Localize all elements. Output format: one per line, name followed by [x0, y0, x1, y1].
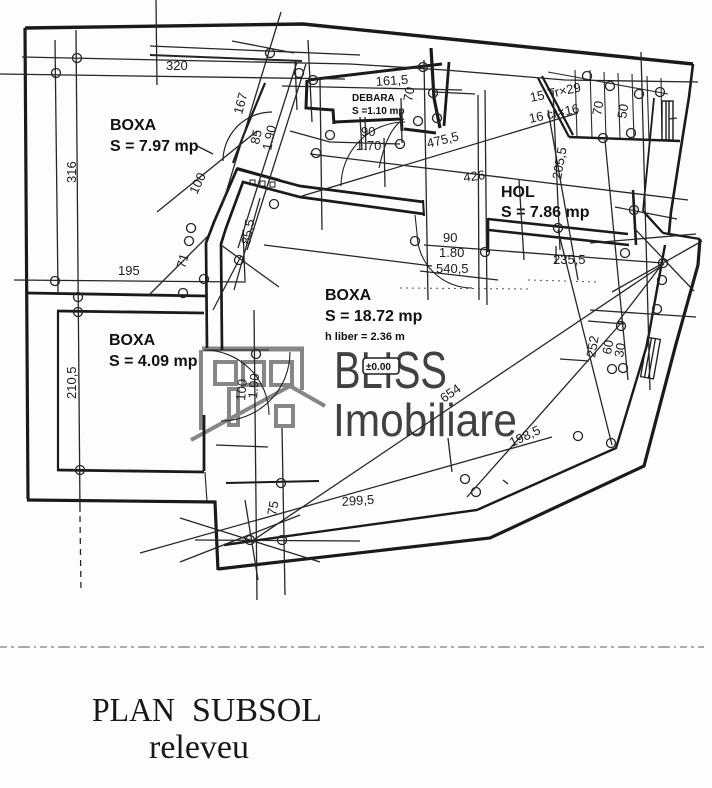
svg-text:235,5: 235,5 — [553, 252, 586, 267]
svg-text:75: 75 — [264, 500, 281, 517]
svg-text:210,5: 210,5 — [64, 366, 79, 399]
svg-text:±0.00: ±0.00 — [366, 362, 391, 373]
svg-text:BOXA: BOXA — [109, 332, 156, 349]
svg-text:BOXA: BOXA — [110, 117, 157, 134]
svg-text:h liber = 2.36 m: h liber = 2.36 m — [325, 331, 405, 343]
svg-text:90: 90 — [443, 230, 457, 245]
svg-text:70: 70 — [589, 100, 606, 117]
svg-text:1.80: 1.80 — [439, 245, 464, 260]
svg-text:70: 70 — [400, 86, 417, 103]
svg-text:Imobiliare: Imobiliare — [333, 394, 517, 446]
svg-text:299,5: 299,5 — [341, 492, 375, 509]
svg-text:90: 90 — [361, 124, 375, 139]
svg-text:BOXA: BOXA — [325, 287, 372, 304]
svg-text:releveu: releveu — [149, 729, 249, 766]
svg-text:1.90: 1.90 — [245, 373, 262, 400]
svg-text:S = 7.97 mp: S = 7.97 mp — [110, 138, 199, 155]
svg-text:30: 30 — [611, 342, 628, 359]
svg-text:SUBSOL: SUBSOL — [192, 692, 322, 729]
svg-text:S = 4.09 mp: S = 4.09 mp — [109, 353, 198, 370]
svg-text:S = 18.72 mp: S = 18.72 mp — [325, 308, 423, 325]
svg-text:S = 7.86 mp: S = 7.86 mp — [501, 204, 590, 221]
svg-text:HOL: HOL — [501, 184, 535, 201]
svg-text:316: 316 — [64, 161, 79, 183]
svg-text:PLAN: PLAN — [92, 692, 175, 729]
svg-text:426: 426 — [462, 167, 486, 185]
svg-text:S =1.10 mp: S =1.10 mp — [352, 106, 405, 117]
svg-text:540,5: 540,5 — [436, 261, 469, 276]
svg-text:320: 320 — [166, 58, 188, 73]
svg-text:50: 50 — [614, 103, 631, 120]
svg-text:DEBARA: DEBARA — [352, 93, 395, 104]
svg-text:1.70: 1.70 — [356, 138, 381, 153]
svg-text:195: 195 — [118, 263, 140, 278]
